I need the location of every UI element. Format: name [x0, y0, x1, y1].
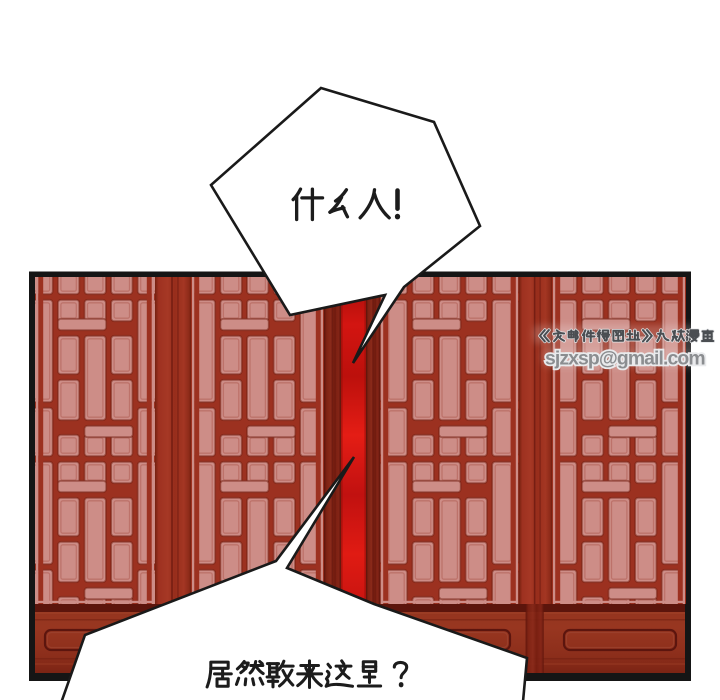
svg-text:sjzxsp@gmail.com: sjzxsp@gmail.com — [545, 348, 705, 370]
